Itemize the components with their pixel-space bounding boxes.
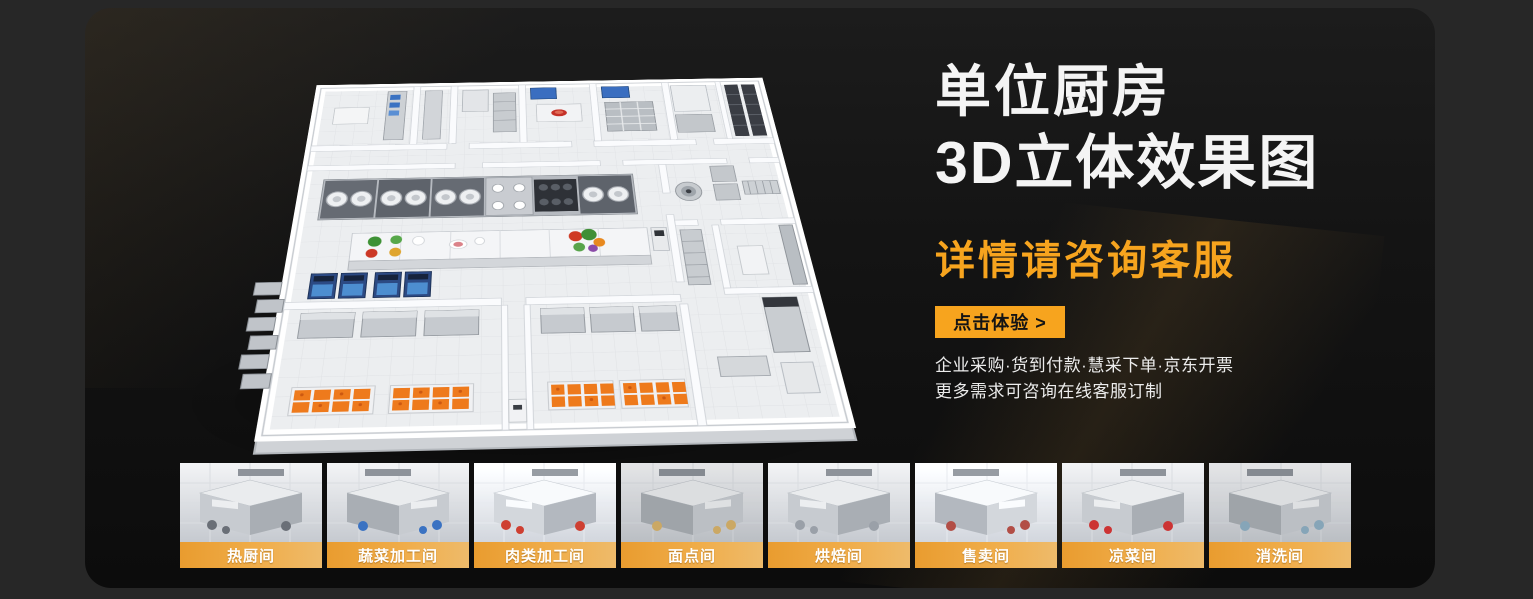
thumbnail-label: 售卖间 xyxy=(915,542,1057,568)
thumbnail-image xyxy=(1209,463,1351,542)
thumbnail-tile-washing-room[interactable]: 消洗间 xyxy=(1209,463,1351,568)
hero-title-line1: 单位厨房 xyxy=(935,56,1405,128)
prep-table xyxy=(348,227,672,270)
thumbnail-image xyxy=(180,463,322,542)
thumbnail-label: 肉类加工间 xyxy=(474,542,616,568)
thumbnail-image xyxy=(621,463,763,542)
thumbnail-label: 蔬菜加工间 xyxy=(327,542,469,568)
cook-line xyxy=(318,174,638,220)
thumbnail-tile-meat-processing[interactable]: 肉类加工间 xyxy=(474,463,616,568)
thumbnail-label: 凉菜间 xyxy=(1062,542,1204,568)
banner-card: 单位厨房 3D立体效果图 详情请咨询客服 点击体验 > 企业采购·货到付款·慧采… xyxy=(85,8,1435,588)
page-background: 单位厨房 3D立体效果图 详情请咨询客服 点击体验 > 企业采购·货到付款·慧采… xyxy=(0,0,1533,599)
thumbnail-tile-pastry-room[interactable]: 面点间 xyxy=(621,463,763,568)
thumbnail-label: 烘焙间 xyxy=(768,542,910,568)
hero-title-line2: 3D立体效果图 xyxy=(935,128,1405,198)
room-thumbnail-strip: 热厨间 蔬菜加工间 肉类加工间 xyxy=(180,463,1351,568)
thumbnail-tile-cold-dish-room[interactable]: 凉菜间 xyxy=(1062,463,1204,568)
thumbnail-tile-vegetable-processing[interactable]: 蔬菜加工间 xyxy=(327,463,469,568)
thumbnail-tile-hot-kitchen[interactable]: 热厨间 xyxy=(180,463,322,568)
hero-subtitle: 详情请咨询客服 xyxy=(935,228,1405,286)
thumbnail-tile-sales-room[interactable]: 售卖间 xyxy=(915,463,1057,568)
cta-button[interactable]: 点击体验 > xyxy=(935,306,1065,338)
hero-text-block: 单位厨房 3D立体效果图 详情请咨询客服 点击体验 > 企业采购·货到付款·慧采… xyxy=(935,56,1405,405)
hero-info-line2: 更多需求可咨询在线客服订制 xyxy=(935,379,1405,405)
thumbnail-image xyxy=(915,463,1057,542)
floorplan-svg xyxy=(213,66,869,465)
thumbnail-image xyxy=(768,463,910,542)
thumbnail-tile-baking-room[interactable]: 烘焙间 xyxy=(768,463,910,568)
thumbnail-image xyxy=(327,463,469,542)
kitchen-floorplan-3d xyxy=(85,8,985,478)
thumbnail-image xyxy=(1062,463,1204,542)
thumbnail-image xyxy=(474,463,616,542)
thumbnail-label: 消洗间 xyxy=(1209,542,1351,568)
hero-info-line1: 企业采购·货到付款·慧采下单·京东开票 xyxy=(935,353,1405,379)
thumbnail-label: 面点间 xyxy=(621,542,763,568)
thumbnail-label: 热厨间 xyxy=(180,542,322,568)
